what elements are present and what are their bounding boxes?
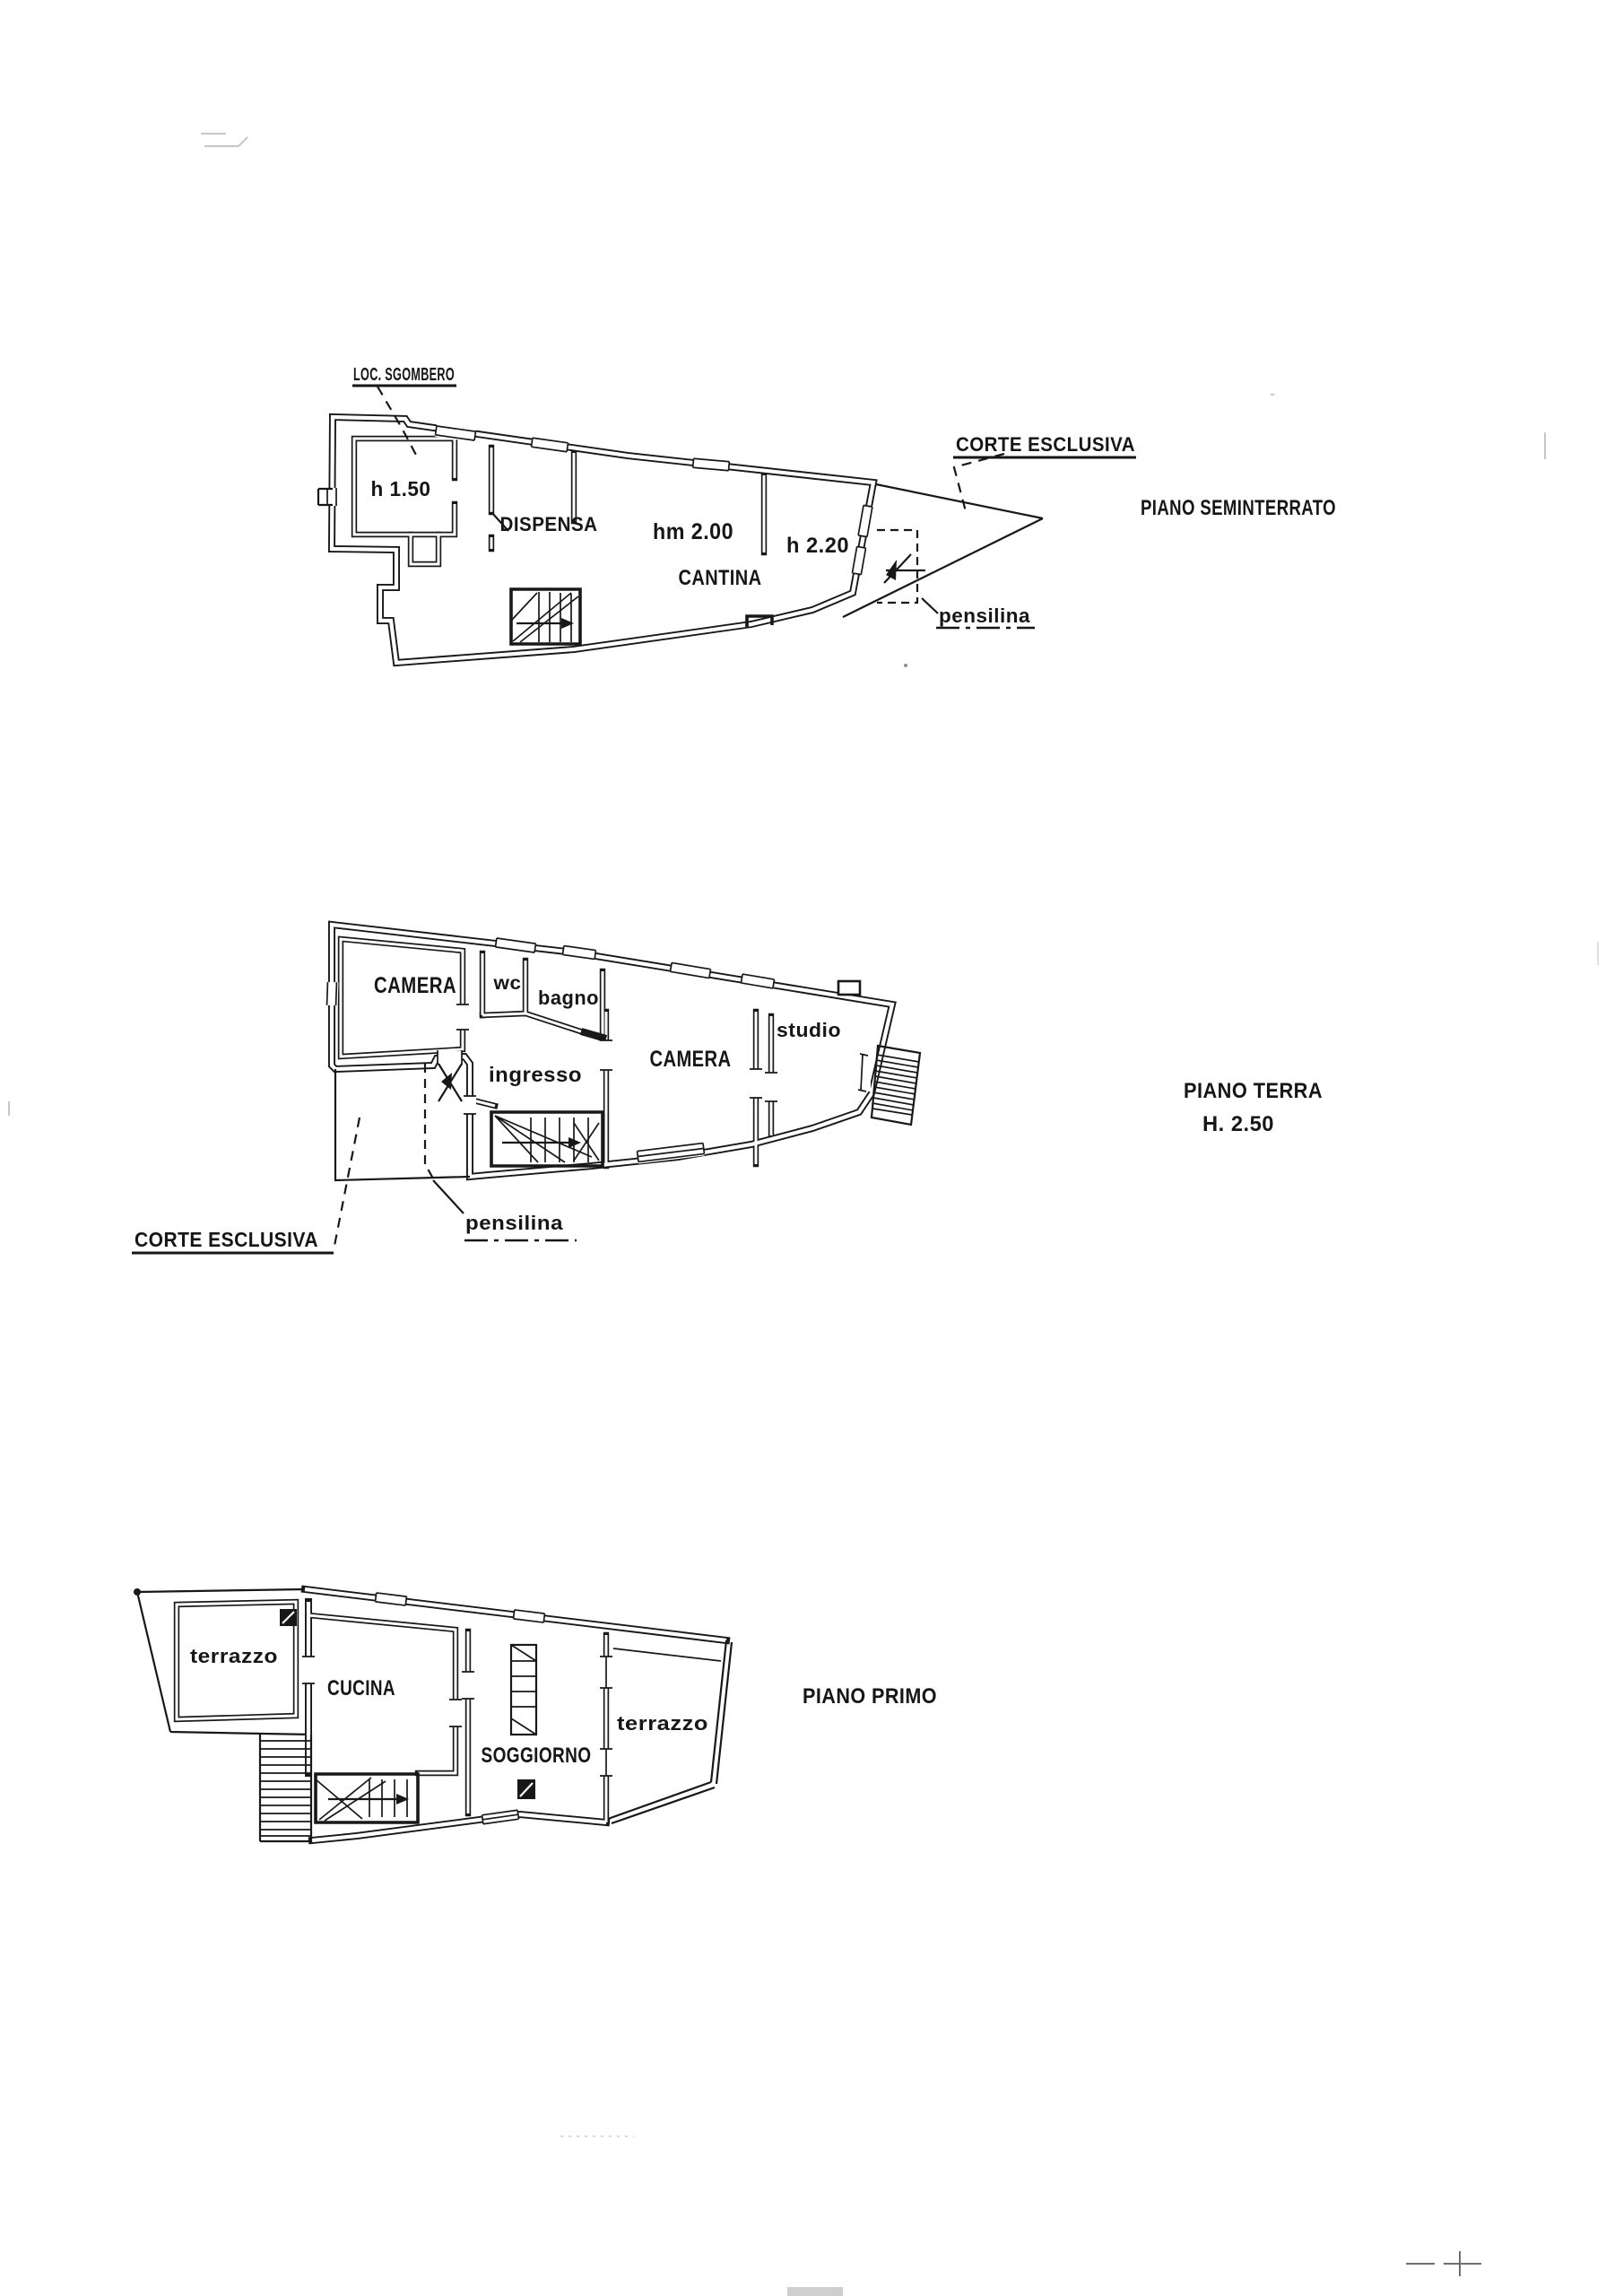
annotation-corte-esclusiva: CORTE ESCLUSIVA (956, 433, 1135, 456)
chimney-notch (838, 981, 860, 995)
window-icon (692, 457, 729, 472)
leader-line (922, 598, 938, 613)
door-swing-icon (438, 1064, 462, 1101)
room-label-camera-left: CAMERA (374, 973, 456, 998)
window-icon (670, 961, 711, 979)
window-icon (513, 1608, 544, 1624)
plan-terra: CAMERA wc bagno ingresso CAMERA studio C… (132, 925, 1323, 1253)
plan-height-note: H. 2.50 (1202, 1112, 1274, 1136)
plan-title-primo: PIANO PRIMO (803, 1684, 937, 1709)
room-label-h220: h 2.20 (786, 534, 849, 558)
plan-seminterrato: LOC. SGOMBERO h 1.50 DISPENSA hm 2.00 CA… (318, 365, 1336, 663)
window-icon (562, 944, 596, 961)
room-label-cucina: CUCINA (327, 1676, 395, 1700)
window-icon (325, 488, 338, 506)
window-icon (531, 436, 568, 453)
window-icon (741, 972, 775, 990)
pensilina-canopy-outline (877, 530, 917, 603)
window-icon (856, 505, 874, 537)
window-icon (325, 982, 339, 1005)
leader-line (334, 1118, 360, 1250)
room-label-terrazzo-left: terrazzo (190, 1645, 278, 1667)
plan-title-seminterrato: PIANO SEMINTERRATO (1141, 496, 1336, 520)
annotation-pensilina: pensilina (465, 1212, 563, 1234)
window-icon (851, 546, 868, 575)
room-label-h150: h 1.50 (371, 477, 431, 500)
scanned-floor-plan-sheet: LOC. SGOMBERO h 1.50 DISPENSA hm 2.00 CA… (0, 0, 1623, 2296)
window-icon (482, 1808, 519, 1825)
room-label-terrazzo-right: terrazzo (617, 1712, 708, 1735)
floor-plan-drawing: LOC. SGOMBERO h 1.50 DISPENSA hm 2.00 CA… (0, 0, 1623, 2296)
annotation-corte-esclusiva: CORTE ESCLUSIVA (135, 1228, 318, 1251)
annotation-loc-sgombero: LOC. SGOMBERO (353, 365, 455, 385)
room-label-camera-center: CAMERA (650, 1047, 732, 1072)
room-label-hm200: hm 2.00 (653, 519, 733, 544)
window-icon (495, 936, 536, 954)
pensilina-canopy-outline (425, 1064, 433, 1178)
room-label-wc: wc (492, 973, 521, 994)
french-window-icon (511, 1645, 536, 1735)
window-icon (375, 1591, 406, 1607)
stairs-icon (316, 1774, 418, 1822)
room-label-studio: studio (777, 1019, 841, 1041)
stairs-icon (491, 1112, 603, 1166)
room-label-cantina: CANTINA (679, 566, 762, 590)
room-label-bagno: bagno (538, 987, 599, 1009)
leader-line (433, 1180, 464, 1213)
room-label-soggiorno: SOGGIORNO (482, 1744, 592, 1768)
stairs-icon (511, 589, 580, 644)
external-stairs-icon (260, 1733, 311, 1841)
annotation-pensilina: pensilina (939, 604, 1030, 627)
plan-title-terra: PIANO TERRA (1184, 1079, 1323, 1103)
room-label-ingresso: ingresso (489, 1063, 582, 1086)
plan-primo: terrazzo CUCINA SOGGIORNO terrazzo PIANO… (134, 1588, 937, 1841)
room-label-dispensa: DISPENSA (500, 513, 598, 535)
scan-artifacts (9, 134, 1598, 2296)
